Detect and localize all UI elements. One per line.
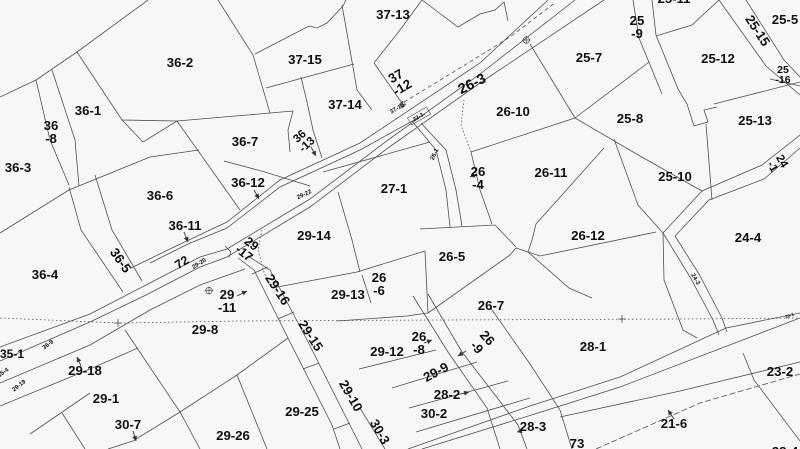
svg-text:21-6: 21-6	[661, 416, 687, 431]
svg-text:29-8: 29-8	[192, 322, 218, 337]
svg-text:36-4: 36-4	[32, 267, 59, 282]
svg-text:29-25: 29-25	[285, 404, 319, 419]
svg-text:28-1: 28-1	[580, 339, 606, 354]
svg-text:28-4: 28-4	[772, 444, 799, 449]
svg-text:26-11: 26-11	[534, 165, 567, 180]
svg-text:25-11: 25-11	[657, 0, 690, 6]
svg-text:36-8: 36-8	[44, 118, 59, 146]
svg-text:25-13: 25-13	[738, 113, 772, 128]
svg-text:29-14: 29-14	[297, 228, 331, 243]
svg-text:36-12: 36-12	[231, 175, 265, 190]
svg-text:37-14: 37-14	[328, 97, 362, 112]
svg-text:27-1: 27-1	[381, 181, 407, 196]
svg-text:26-12: 26-12	[571, 228, 605, 243]
svg-text:29-26: 29-26	[216, 428, 250, 443]
svg-text:29-11: 29-11	[218, 287, 236, 315]
svg-text:29-13: 29-13	[331, 287, 365, 302]
svg-text:25-8: 25-8	[617, 111, 643, 126]
svg-text:36-7: 36-7	[232, 134, 258, 149]
svg-text:25-7: 25-7	[576, 50, 602, 65]
svg-text:29-1: 29-1	[93, 391, 119, 406]
svg-text:29-12: 29-12	[370, 344, 404, 359]
svg-text:37-15: 37-15	[288, 52, 322, 67]
svg-text:28-2: 28-2	[434, 387, 460, 402]
svg-text:23-2: 23-2	[767, 364, 793, 379]
svg-text:30-2: 30-2	[421, 406, 447, 421]
svg-text:26-8: 26-8	[412, 329, 427, 357]
svg-text:25-5: 25-5	[772, 12, 798, 27]
svg-text:25-10: 25-10	[658, 169, 692, 184]
svg-text:36-3: 36-3	[5, 160, 31, 175]
svg-text:36-11: 36-11	[168, 218, 201, 233]
svg-text:35-1: 35-1	[0, 347, 24, 361]
svg-text:73: 73	[570, 436, 585, 449]
svg-text:26-4: 26-4	[471, 164, 486, 192]
svg-text:29-18: 29-18	[68, 363, 102, 378]
svg-text:26-7: 26-7	[478, 298, 504, 313]
svg-text:28-3: 28-3	[520, 419, 546, 434]
svg-text:36-2: 36-2	[167, 55, 193, 70]
svg-text:26-10: 26-10	[496, 104, 530, 119]
svg-text:37-13: 37-13	[376, 7, 410, 22]
svg-text:26-6: 26-6	[372, 270, 387, 298]
svg-text:25-16: 25-16	[775, 64, 790, 86]
svg-text:36-1: 36-1	[75, 103, 101, 118]
svg-text:25-9: 25-9	[630, 13, 645, 41]
svg-text:25-12: 25-12	[701, 51, 735, 66]
svg-text:26-5: 26-5	[439, 249, 465, 264]
svg-text:30-7: 30-7	[115, 417, 141, 432]
svg-text:24-4: 24-4	[735, 230, 762, 245]
svg-text:36-6: 36-6	[147, 188, 173, 203]
